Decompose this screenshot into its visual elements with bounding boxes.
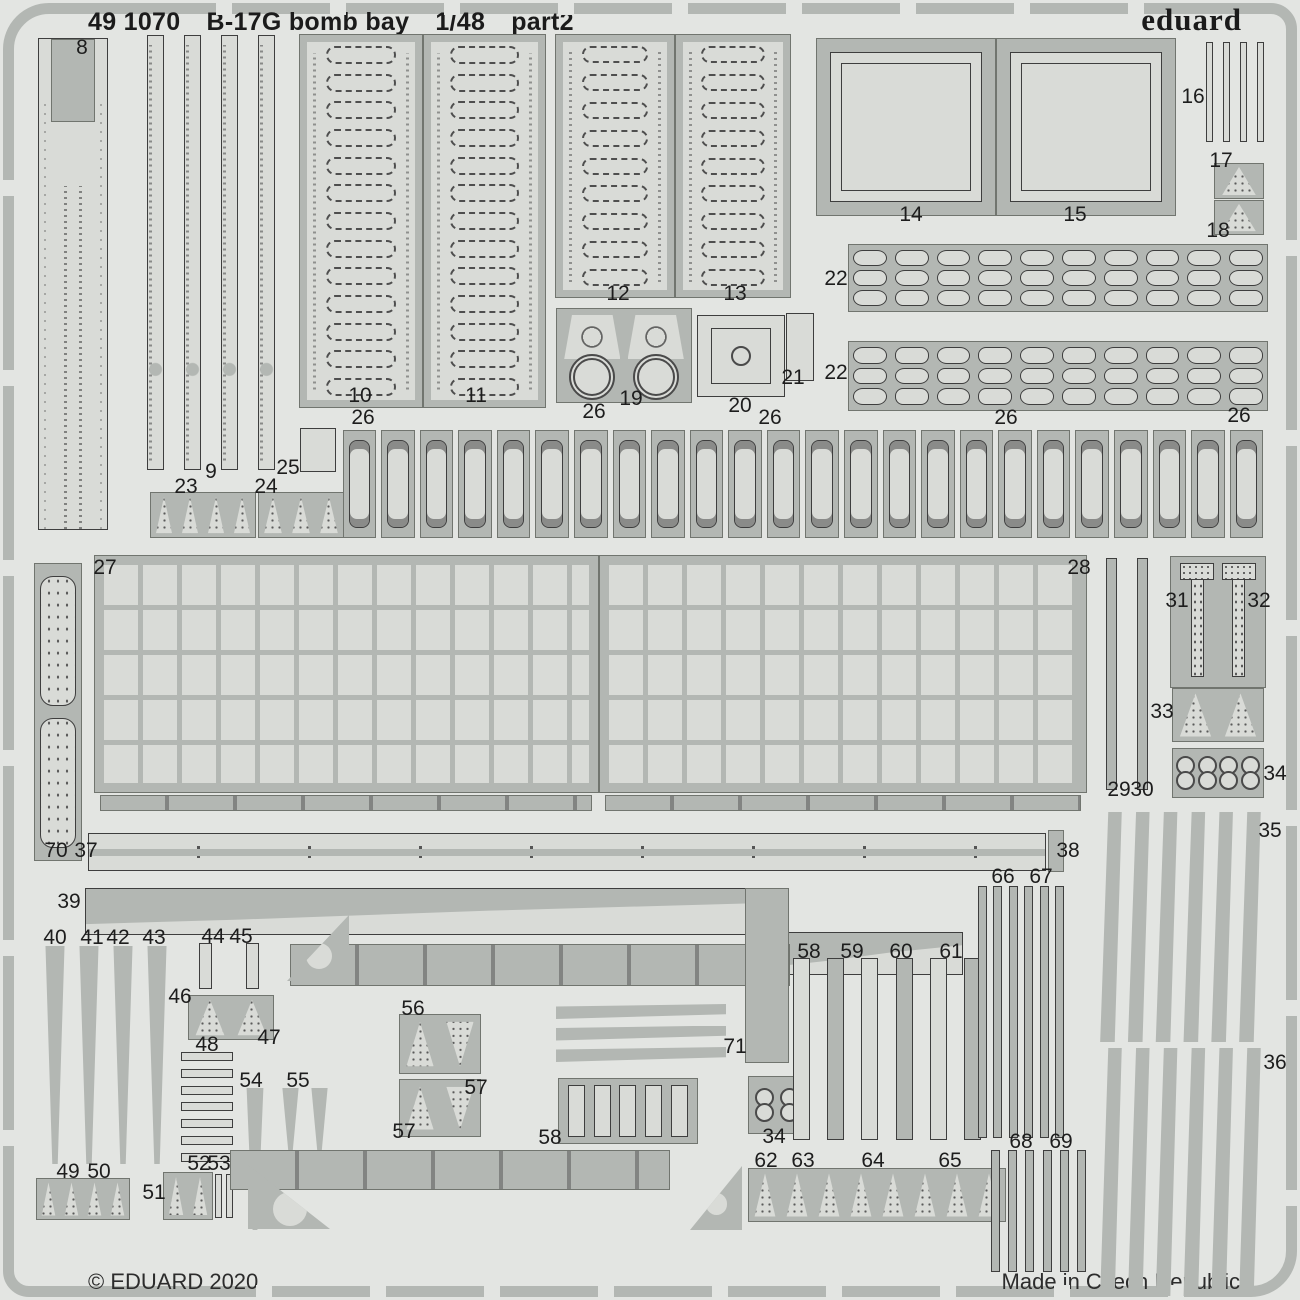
part-label-67: 67	[1029, 865, 1052, 889]
frame-gap	[2, 560, 15, 576]
part-27b	[100, 795, 592, 811]
part-33	[1172, 688, 1264, 742]
catalog-number: 49 1070	[88, 8, 180, 36]
sheet-title: B-17G bomb bay	[206, 8, 409, 36]
part-label-10: 10	[348, 384, 371, 408]
part-label-12: 12	[606, 282, 629, 306]
frame-gap	[826, 1285, 842, 1298]
part-label-35: 35	[1258, 819, 1281, 843]
part-label-71: 71	[723, 1035, 746, 1059]
part-label-24: 24	[254, 475, 277, 499]
frame-gap	[1285, 1190, 1298, 1206]
part-label-36: 36	[1263, 1051, 1286, 1075]
part-62-65	[748, 1168, 1006, 1222]
part-label-8: 8	[76, 36, 88, 60]
part-label-25: 25	[276, 456, 299, 480]
part-label-65: 65	[938, 1149, 961, 1173]
part-label-28: 28	[1067, 556, 1090, 580]
part-28b	[605, 795, 1081, 811]
part-label-19: 19	[619, 387, 642, 411]
frame-gap	[1054, 1285, 1070, 1298]
part-20	[697, 315, 785, 397]
part-49-50	[36, 1178, 130, 1220]
part-label-27: 27	[93, 556, 116, 580]
part-label-9: 9	[205, 460, 217, 484]
part-label-48: 48	[195, 1033, 218, 1057]
copyright-text: © EDUARD 2020	[88, 1269, 258, 1295]
frame-gap	[672, 2, 688, 15]
part-label-43: 43	[142, 926, 165, 950]
frame-gap	[1285, 1000, 1298, 1016]
part-label-20: 20	[728, 394, 751, 418]
frame-gap	[216, 2, 232, 15]
frame-gap	[330, 2, 346, 15]
part-label-15: 15	[1063, 203, 1086, 227]
frame-gap	[370, 1285, 386, 1298]
part-36	[1098, 1048, 1264, 1296]
part-label-26: 26	[351, 406, 374, 430]
part-label-30: 30	[1130, 778, 1153, 802]
frame-gap	[786, 2, 802, 15]
part-label-68: 68	[1009, 1130, 1032, 1154]
part-label-37: 37	[74, 839, 97, 863]
part-label-18: 18	[1206, 219, 1229, 243]
frame-gap	[484, 1285, 500, 1298]
part-40-43	[38, 946, 174, 1164]
frame-gap	[1285, 430, 1298, 446]
part-label-34: 34	[1263, 762, 1286, 786]
part-37	[88, 833, 1046, 871]
part-35	[1098, 812, 1264, 1042]
part-label-42: 42	[106, 926, 129, 950]
part-10	[300, 35, 422, 407]
part-label-39: 39	[57, 890, 80, 914]
part-label-61: 61	[939, 940, 962, 964]
frame-gap	[2, 1130, 15, 1146]
part-label-54: 54	[239, 1069, 262, 1093]
part-label-29: 29	[1107, 778, 1130, 802]
part-label-32: 32	[1247, 589, 1270, 613]
part-70	[34, 563, 82, 861]
part-label-22: 22	[824, 267, 847, 291]
part-label-16: 16	[1181, 85, 1204, 109]
part-label-49: 49	[56, 1160, 79, 1184]
part-label-33: 33	[1150, 700, 1173, 724]
part-15	[996, 38, 1176, 216]
part-58-61	[793, 958, 981, 1140]
part-29-30	[1106, 558, 1148, 790]
part-label-22: 22	[824, 361, 847, 385]
tri-hole-3	[690, 1166, 742, 1230]
part-label-55: 55	[286, 1069, 309, 1093]
part-label-13: 13	[723, 282, 746, 306]
part-31-32	[1170, 556, 1266, 688]
part-71	[556, 1002, 726, 1066]
part-label-66: 66	[991, 865, 1014, 889]
part-label-57: 57	[392, 1120, 415, 1144]
frame-gap	[1128, 2, 1144, 15]
part-11	[424, 35, 545, 407]
part-label-58: 58	[538, 1126, 561, 1150]
part-68-69	[991, 1150, 1086, 1272]
frame-gap	[2, 180, 15, 196]
sheet-scale: 1/48	[435, 8, 485, 36]
part-label-31: 31	[1165, 589, 1188, 613]
part-label-63: 63	[791, 1149, 814, 1173]
part-12	[556, 35, 674, 297]
part-label-70: 70	[44, 839, 67, 863]
carrier-mid	[290, 944, 790, 986]
part-51-52	[163, 1172, 213, 1220]
brand-logo: eduard	[1141, 2, 1242, 38]
frame-gap	[558, 2, 574, 15]
part-label-62: 62	[754, 1149, 777, 1173]
part-label-46: 46	[168, 985, 191, 1009]
part-label-41: 41	[80, 926, 103, 950]
part-label-60: 60	[889, 940, 912, 964]
part-label-69: 69	[1049, 1130, 1072, 1154]
part-label-34: 34	[762, 1125, 785, 1149]
part-55	[276, 1088, 334, 1150]
part-14	[816, 38, 996, 216]
part-66-67	[978, 886, 1064, 1138]
frame-gap	[2, 370, 15, 386]
part-label-23: 23	[174, 475, 197, 499]
frame-gap	[2, 940, 15, 956]
part-label-26: 26	[1227, 404, 1250, 428]
part-label-14: 14	[899, 203, 922, 227]
frame-gap	[712, 1285, 728, 1298]
part-22a	[848, 244, 1268, 312]
part-label-64: 64	[861, 1149, 884, 1173]
part-48	[181, 1052, 233, 1162]
frame-gap	[1014, 2, 1030, 15]
part-label-26: 26	[994, 406, 1017, 430]
part-label-11: 11	[465, 384, 487, 408]
frame-gap	[900, 2, 916, 15]
frame-gap	[598, 1285, 614, 1298]
part-25	[300, 428, 336, 472]
part-9	[147, 35, 275, 470]
frame-gap	[444, 2, 460, 15]
part-label-44: 44	[201, 925, 224, 949]
part-label-50: 50	[87, 1160, 110, 1184]
part-label-21: 21	[781, 366, 804, 390]
part-8	[38, 38, 108, 530]
part-label-40: 40	[43, 926, 66, 950]
part-16	[1206, 38, 1264, 146]
part-label-59: 59	[840, 940, 863, 964]
frame-gap	[2, 750, 15, 766]
part-label-58: 58	[797, 940, 820, 964]
part-label-26: 26	[582, 400, 605, 424]
part-56	[399, 1014, 481, 1074]
part-label-17: 17	[1209, 149, 1232, 173]
part-label-45: 45	[229, 925, 252, 949]
part-label-26: 26	[758, 406, 781, 430]
part-label-51: 51	[142, 1181, 165, 1205]
part-34a	[1172, 748, 1264, 798]
part-label-47: 47	[257, 1026, 280, 1050]
part-label-56: 56	[401, 997, 424, 1021]
frame-gap	[1285, 240, 1298, 256]
part-23	[150, 492, 256, 538]
part-22b	[848, 341, 1268, 411]
photoetch-sheet: 49 1070B-17G bomb bay1/48part2 eduard © …	[0, 0, 1300, 1300]
part-58m	[558, 1078, 698, 1144]
part-label-53: 53	[207, 1152, 230, 1176]
frame-gap	[1285, 620, 1298, 636]
part-39a	[85, 888, 783, 935]
part-27	[95, 556, 598, 792]
part-26	[340, 430, 1266, 538]
frame-gap	[1285, 810, 1298, 826]
carrier-low	[230, 1150, 670, 1190]
carrier-vbar	[745, 888, 789, 1063]
frame-gap	[940, 1285, 956, 1298]
part-28	[600, 556, 1086, 792]
part-label-38: 38	[1056, 839, 1079, 863]
part-13	[676, 35, 790, 297]
frame-gap	[256, 1285, 272, 1298]
part-label-57: 57	[464, 1076, 487, 1100]
